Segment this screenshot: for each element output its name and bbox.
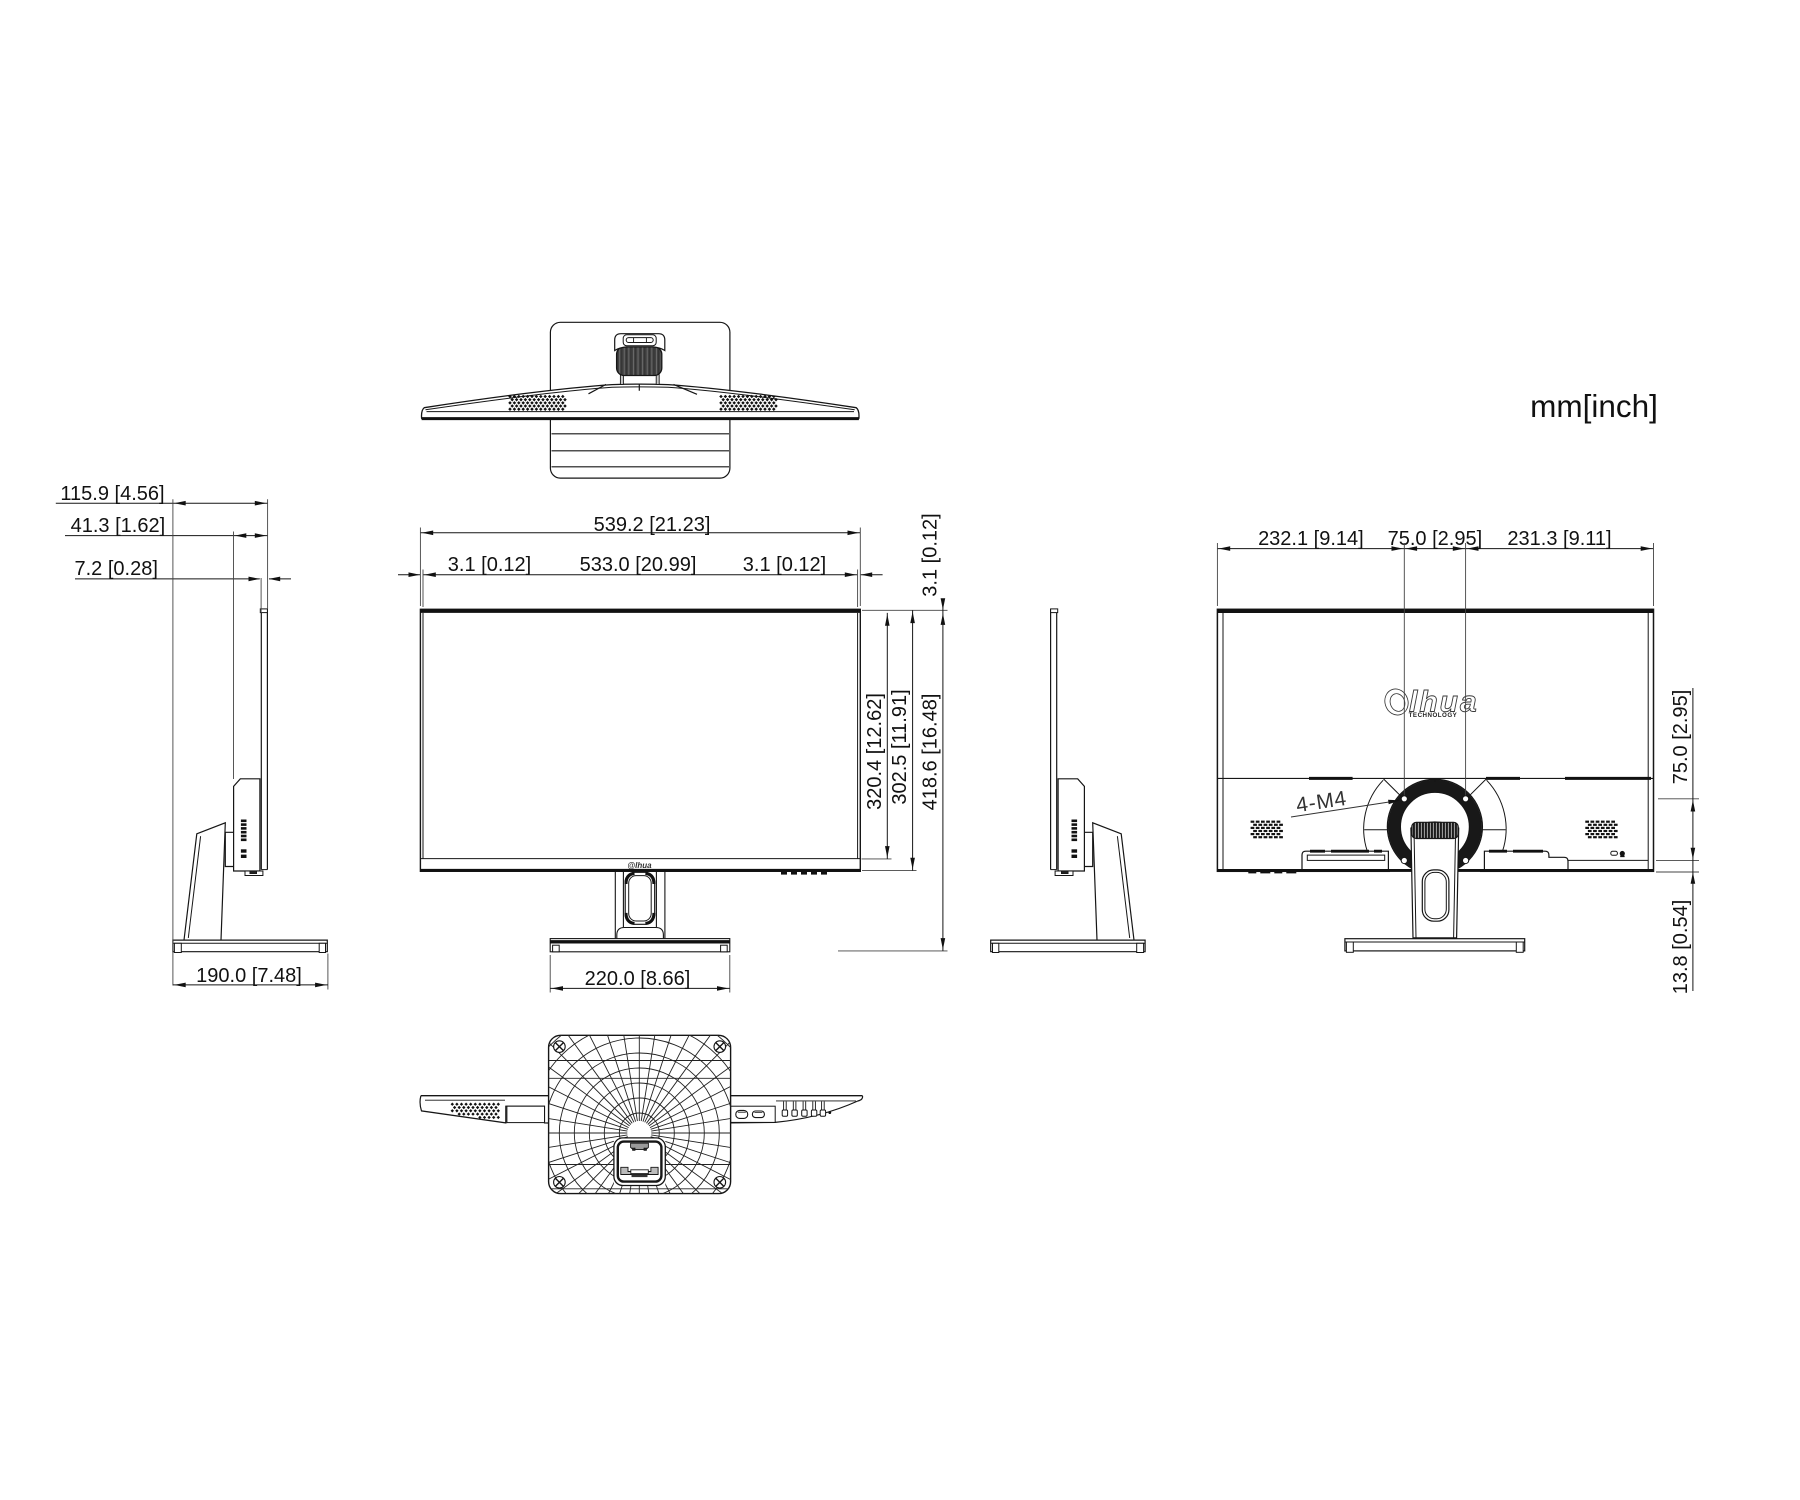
svg-text:231.3 [9.11]: 231.3 [9.11] bbox=[1507, 528, 1611, 550]
svg-text:7.2 [0.28]: 7.2 [0.28] bbox=[74, 558, 157, 580]
svg-text:3.1 [0.12]: 3.1 [0.12] bbox=[743, 554, 826, 576]
svg-text:@lhua: @lhua bbox=[627, 861, 652, 870]
svg-text:232.1 [9.14]: 232.1 [9.14] bbox=[1258, 528, 1364, 550]
svg-text:41.3 [1.62]: 41.3 [1.62] bbox=[71, 515, 166, 537]
svg-text:115.9 [4.56]: 115.9 [4.56] bbox=[60, 483, 164, 505]
svg-text:75.0 [2.95]: 75.0 [2.95] bbox=[1670, 690, 1692, 785]
svg-text:13.8 [0.54]: 13.8 [0.54] bbox=[1670, 900, 1692, 995]
svg-text:75.0 [2.95]: 75.0 [2.95] bbox=[1388, 528, 1483, 550]
svg-text:302.5 [11.91]: 302.5 [11.91] bbox=[889, 689, 911, 804]
svg-text:TECHNOLOGY: TECHNOLOGY bbox=[1409, 712, 1458, 719]
svg-text:190.0 [7.48]: 190.0 [7.48] bbox=[196, 965, 302, 987]
svg-text:3.1 [0.12]: 3.1 [0.12] bbox=[919, 513, 941, 596]
svg-text:320.4 [12.62]: 320.4 [12.62] bbox=[864, 693, 886, 810]
svg-text:533.0 [20.99]: 533.0 [20.99] bbox=[580, 554, 697, 576]
svg-text:mm[inch]: mm[inch] bbox=[1530, 388, 1658, 424]
svg-text:418.6 [16.48]: 418.6 [16.48] bbox=[919, 694, 941, 811]
svg-text:220.0 [8.66]: 220.0 [8.66] bbox=[585, 968, 691, 990]
svg-text:3.1 [0.12]: 3.1 [0.12] bbox=[448, 554, 531, 576]
